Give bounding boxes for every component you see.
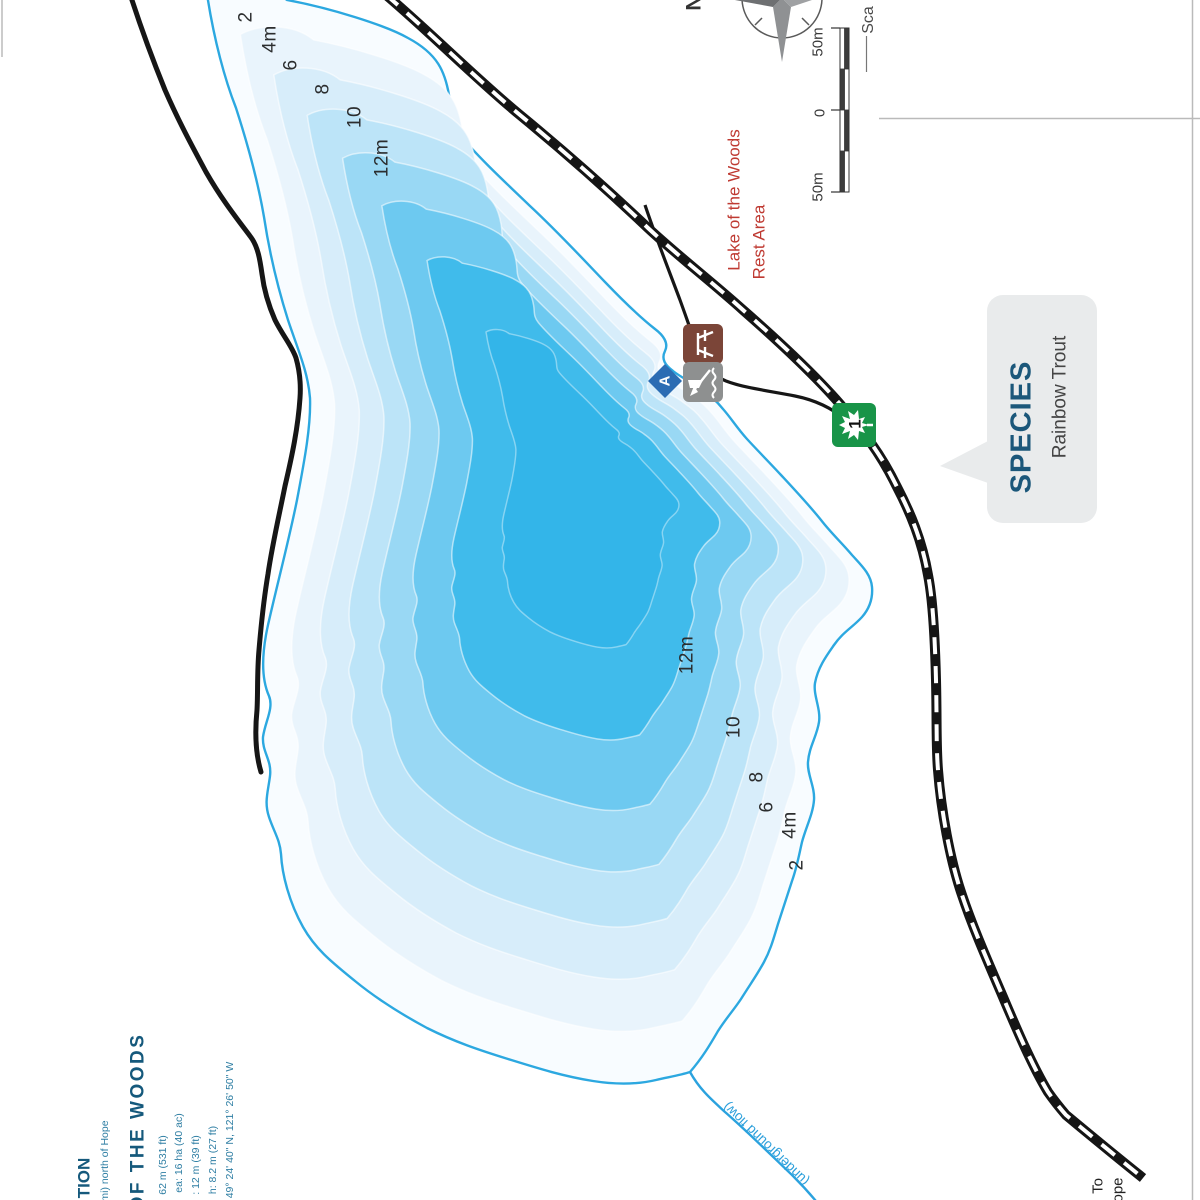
depth-label: 8 [748,771,767,782]
location-heading-fragment: TION [76,1158,93,1199]
depth-label: 6 [282,59,301,70]
access-marker-letter: A [658,376,673,387]
species-callout [987,295,1097,523]
callout-tail [940,441,988,483]
stat-elevation-fragment: 62 m (531 ft) [158,1135,169,1195]
scale-label-bottom: 50m [811,172,826,201]
lake-title-fragment: OF THE WOODS [129,1033,148,1200]
compass-north-label: N [684,0,705,11]
compass-rose [724,0,822,62]
depth-label: 6 [758,801,777,812]
scale-bar [831,28,867,192]
stat-area-fragment: ea: 16 ha (40 ac) [174,1113,185,1192]
depth-label: 12m [373,139,392,177]
depth-label: 8 [314,83,333,94]
species-callout-title: SPECIES [1008,361,1037,494]
stat-max-depth-fragment: : 12 m (39 ft) [191,1135,202,1195]
highway-shield-number: 1 [847,419,864,428]
north-arrow [773,0,791,62]
depth-label: 2 [237,11,256,22]
depth-label: 4m [781,811,800,838]
lake-map-page: 2 4m 6 8 10 12m 12m 10 8 6 4m 2 Lake of … [0,0,1200,1200]
depth-label: 4m [261,25,280,52]
bathymetric-map-canvas [0,0,1200,1200]
location-distance-fragment: mi) north of Hope [100,1120,111,1200]
depth-label: 12m [678,636,697,674]
depth-label: 10 [346,106,365,128]
species-name: Rainbow Trout [1051,336,1070,459]
stat-coordinates: 49° 24' 40" N, 121° 26' 50" W [225,1062,236,1199]
boat-launch-sign [683,362,723,402]
bathymetry-bands [207,0,872,1084]
depth-label: 2 [788,859,807,870]
depth-label: 10 [725,716,744,738]
rest-area-label-line2: Rest Area [751,205,768,280]
to-hope-label-line1: To [1091,1178,1106,1194]
to-hope-label-line2: ope [1111,1177,1126,1200]
scale-label-top: 50m [811,27,826,56]
rest-area-label-line1: Lake of the Woods [726,129,743,270]
stat-mean-depth-fragment: h: 8.2 m (27 ft) [208,1126,219,1194]
scale-label-zero: 0 [813,109,828,117]
scale-title-fragment: Sca [861,6,877,34]
picnic-area-sign [683,324,723,364]
